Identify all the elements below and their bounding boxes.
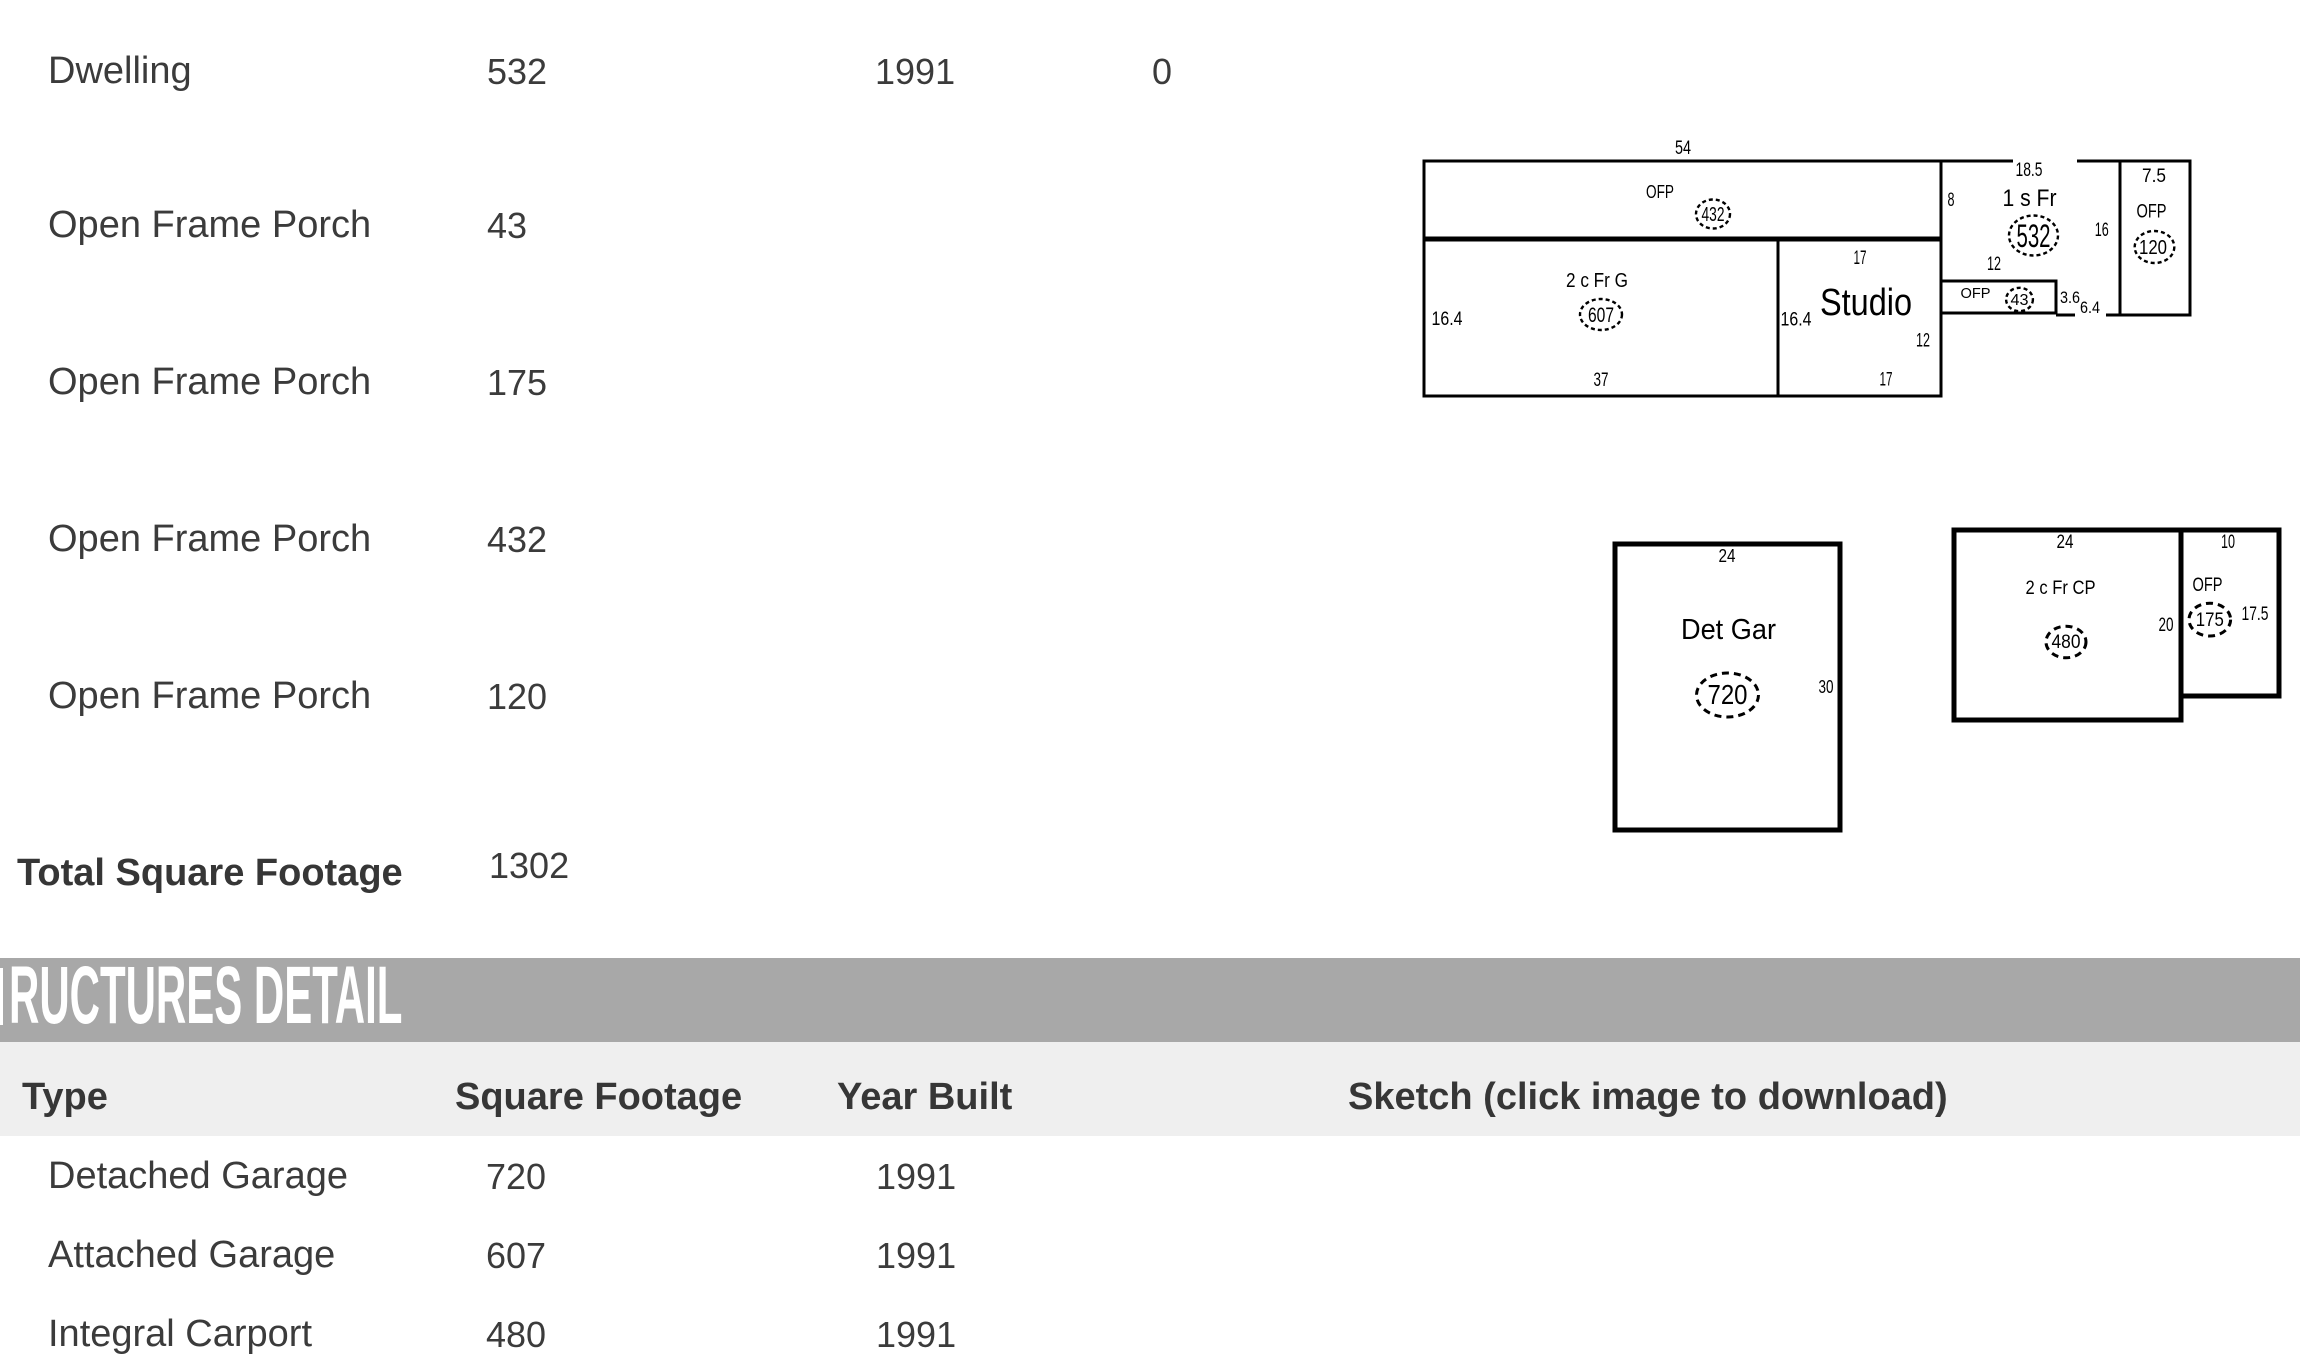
svg-text:3.6: 3.6 (2060, 288, 2080, 307)
svg-text:17.5: 17.5 (2242, 604, 2269, 625)
svg-text:120: 120 (2139, 237, 2167, 259)
svg-text:43: 43 (2011, 292, 2029, 309)
svg-text:8: 8 (1948, 190, 1955, 211)
svg-text:37: 37 (1594, 370, 1609, 391)
svg-text:20: 20 (2159, 615, 2174, 636)
svg-text:432: 432 (1702, 204, 1725, 226)
svg-text:16.4: 16.4 (1781, 310, 1812, 331)
svg-text:2 c Fr G: 2 c Fr G (1566, 270, 1628, 292)
svg-text:OFP: OFP (1646, 182, 1674, 202)
svg-text:30: 30 (1819, 677, 1834, 697)
svg-text:480: 480 (2052, 632, 2081, 653)
svg-text:10: 10 (2221, 532, 2235, 553)
svg-text:Det Gar: Det Gar (1681, 614, 1776, 646)
svg-text:12: 12 (1916, 331, 1930, 352)
svg-text:607: 607 (1588, 304, 1614, 327)
svg-text:Studio: Studio (1820, 282, 1912, 324)
svg-text:7.5: 7.5 (2142, 166, 2166, 187)
svg-text:16: 16 (2095, 220, 2109, 241)
svg-text:OFP: OFP (2193, 575, 2223, 596)
svg-text:16.4: 16.4 (1432, 309, 1463, 330)
svg-text:2 c Fr CP: 2 c Fr CP (2026, 578, 2096, 599)
svg-text:17: 17 (1880, 370, 1893, 391)
svg-text:24: 24 (2057, 532, 2074, 553)
svg-text:532: 532 (2017, 218, 2051, 254)
svg-text:OFP: OFP (2137, 202, 2167, 223)
svg-text:24: 24 (1719, 546, 1736, 566)
svg-text:17: 17 (1854, 248, 1867, 269)
svg-text:720: 720 (1708, 679, 1748, 710)
svg-text:1 s Fr: 1 s Fr (2003, 185, 2057, 212)
svg-text:18.5: 18.5 (2016, 160, 2043, 181)
svg-text:12: 12 (1987, 254, 2001, 275)
svg-text:54: 54 (1675, 138, 1691, 159)
svg-text:OFP: OFP (1961, 285, 1991, 302)
svg-text:175: 175 (2196, 610, 2224, 631)
svg-text:6.4: 6.4 (2080, 298, 2100, 317)
